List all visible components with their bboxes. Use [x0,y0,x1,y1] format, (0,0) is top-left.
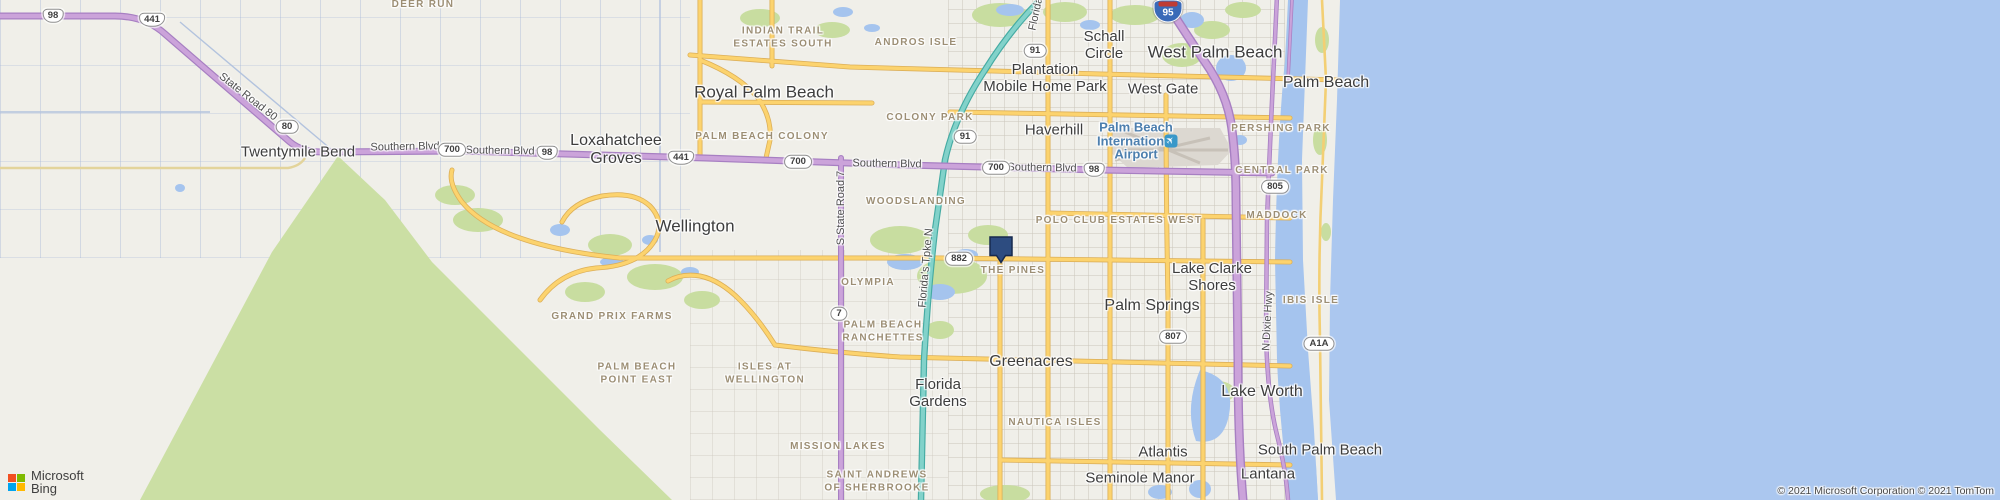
neighborhood-label: THE PINES [981,265,1046,278]
city-label: Greenacres [989,353,1073,371]
neighborhood-label: PALM BEACH COLONY [695,131,829,144]
road-label: Southern Blvd [465,144,534,158]
neighborhood-label: PERSHING PARK [1231,123,1331,136]
neighborhood-label: NAUTICA ISLES [1008,417,1101,430]
city-label: Wellington [655,216,734,235]
neighborhood-label: ANDROS ISLE [875,37,958,50]
city-label: Atlantis [1138,445,1187,462]
neighborhood-label: WOODSLANDING [866,196,966,209]
ocean [1316,0,2000,500]
neighborhood-label: DEER RUN [392,0,455,11]
neighborhood-label: PALM BEACH RANCHETTES [842,320,923,345]
neighborhood-label: COLONY PARK [886,112,973,125]
interstate-shield-band [1159,2,1178,7]
preserve-green [140,156,672,500]
city-label: West Palm Beach [1148,42,1283,61]
brand-line-microsoft: Microsoft [31,469,84,483]
city-label: Haverhill [1025,123,1083,140]
city-label: Schall Circle [1084,29,1125,63]
city-label: Royal Palm Beach [694,82,834,101]
city-label: Loxahatchee Groves [570,132,662,168]
brand-line-bing: Bing [31,482,84,496]
city-label: Lake Clarke Shores [1172,261,1252,295]
city-label: Palm Springs [1104,297,1199,315]
road-label: Southern Blvd [370,140,439,154]
city-label: Lantana [1241,467,1295,484]
neighborhood-label: INDIAN TRAIL ESTATES SOUTH [733,26,832,51]
neighborhood-label: CENTRAL PARK [1235,165,1329,178]
neighborhood-label: IBIS ISLE [1283,295,1339,308]
bing-logo[interactable]: Microsoft Bing [8,469,84,496]
city-label: Seminole Manor [1085,471,1194,488]
neighborhood-label: SAINT ANDREWS OF SHERBROOKE [824,470,929,495]
city-label: South Palm Beach [1258,443,1382,460]
brand-text: Microsoft Bing [31,469,84,496]
neighborhood-label: MISSION LAKES [790,441,886,454]
city-label: Twentymile Bend [241,145,355,162]
road-label: Southern Blvd [1007,161,1076,175]
microsoft-logo-icon [8,474,25,491]
neighborhood-label: GRAND PRIX FARMS [551,311,672,324]
copyright-text: © 2021 Microsoft Corporation © 2021 TomT… [1777,485,1994,497]
route-shield-700: 700 [784,155,812,169]
interstate-shield-number: 95 [1155,7,1182,18]
neighborhood-label: MADDOCK [1246,210,1307,223]
map-canvas[interactable]: Twentymile BendLoxahatchee GrovesRoyal P… [0,0,2000,500]
airport-label: Palm Beach International Airport [1097,121,1175,162]
neighborhood-label: OLYMPIA [841,277,895,290]
route-shield-807: 807 [1159,330,1187,344]
route-shield-91: 91 [954,130,977,144]
city-label: West Gate [1128,82,1199,99]
road-label: S State Road 7 [835,171,847,246]
city-label: Lake Worth [1221,383,1303,401]
city-label: Palm Beach [1283,74,1369,92]
route-shield-A1A: A1A [1303,337,1334,351]
road-label: Southern Blvd [852,157,921,171]
airplane-icon: ✈ [1165,135,1178,148]
route-shield-882: 882 [945,252,973,266]
neighborhood-label: ISLES AT WELLINGTON [725,362,805,387]
route-shield-700: 700 [438,143,466,157]
city-label: Plantation Mobile Home Park [983,62,1106,96]
route-shield-91: 91 [1024,44,1047,58]
neighborhood-label: POLO CLUB ESTATES WEST [1036,215,1203,228]
neighborhood-label: PALM BEACH POINT EAST [598,362,677,387]
route-shield-80: 80 [276,120,299,134]
route-shield-805: 805 [1261,180,1289,194]
city-label: Florida Gardens [909,377,967,411]
route-shield-700: 700 [982,161,1010,175]
